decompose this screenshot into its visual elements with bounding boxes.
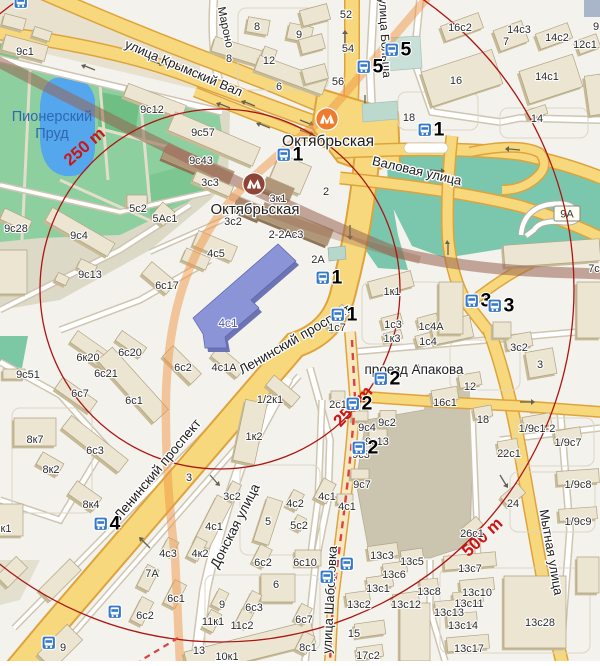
svg-text:9c12: 9c12 (140, 104, 164, 116)
svg-text:4c1A: 4c1A (211, 362, 237, 374)
svg-text:5c2: 5c2 (129, 203, 147, 215)
svg-text:13c6: 13c6 (382, 569, 406, 581)
svg-text:1: 1 (293, 144, 304, 166)
svg-text:1c7: 1c7 (328, 322, 346, 334)
svg-text:4c1: 4c1 (218, 316, 238, 330)
svg-text:9c13: 9c13 (78, 269, 102, 281)
svg-text:4c1: 4c1 (338, 501, 356, 513)
svg-text:6c1: 6c1 (167, 593, 185, 605)
svg-text:7c: 7c (588, 263, 600, 275)
svg-text:6: 6 (276, 81, 282, 93)
svg-text:8к7: 8к7 (26, 434, 43, 446)
svg-text:11c2: 11c2 (230, 620, 253, 632)
svg-text:1/9c9: 1/9c9 (565, 516, 592, 528)
svg-text:5: 5 (401, 39, 412, 61)
svg-text:6c10: 6c10 (293, 557, 317, 569)
svg-text:8c1: 8c1 (299, 642, 317, 654)
svg-text:22c1: 22c1 (497, 448, 521, 460)
svg-text:6c7: 6c7 (71, 388, 89, 400)
svg-text:13c1: 13c1 (366, 583, 390, 595)
svg-text:9c7: 9c7 (353, 479, 371, 491)
svg-text:8: 8 (254, 21, 260, 33)
svg-text:6c2: 6c2 (254, 557, 272, 569)
svg-text:3c3: 3c3 (201, 177, 219, 189)
svg-text:6c3: 6c3 (86, 445, 104, 457)
svg-text:1к3: 1к3 (383, 333, 400, 345)
svg-text:14c1: 14c1 (535, 71, 559, 83)
svg-text:6c21: 6c21 (94, 368, 118, 380)
svg-text:8к2: 8к2 (42, 464, 59, 476)
svg-text:4c1: 4c1 (318, 491, 336, 503)
svg-text:14c2: 14c2 (545, 32, 569, 44)
svg-text:56: 56 (332, 76, 344, 88)
svg-text:3: 3 (504, 295, 515, 317)
svg-text:6c2: 6c2 (136, 610, 154, 622)
svg-text:1к2: 1к2 (245, 431, 262, 443)
svg-text:13c7: 13c7 (458, 563, 482, 575)
svg-text:3c2: 3c2 (510, 342, 528, 354)
svg-text:13: 13 (193, 645, 205, 657)
svg-text:13c28: 13c28 (525, 617, 555, 629)
svg-text:4c1: 4c1 (205, 521, 223, 533)
svg-text:1к1: 1к1 (383, 286, 400, 298)
svg-text:2-2Ac3: 2-2Ac3 (269, 229, 304, 241)
svg-text:6c17: 6c17 (155, 280, 179, 292)
svg-text:12: 12 (263, 55, 275, 67)
svg-text:7: 7 (503, 36, 509, 48)
svg-text:Пионерский: Пионерский (12, 109, 93, 125)
svg-text:54: 54 (342, 43, 354, 55)
svg-text:3c2: 3c2 (223, 491, 241, 503)
svg-text:1c4A: 1c4A (418, 321, 444, 333)
svg-text:11к1: 11к1 (202, 616, 224, 628)
svg-text:5c2: 5c2 (290, 520, 308, 532)
svg-text:17c2: 17c2 (356, 650, 380, 661)
svg-text:14: 14 (531, 113, 543, 125)
svg-text:5: 5 (373, 56, 384, 78)
svg-text:5Ac1: 5Ac1 (152, 213, 177, 225)
svg-text:13c3: 13c3 (370, 550, 394, 562)
svg-text:16: 16 (450, 75, 462, 87)
svg-text:9c43: 9c43 (189, 155, 213, 167)
svg-text:Пруд: Пруд (35, 126, 69, 142)
svg-text:6c7: 6c7 (295, 614, 313, 626)
svg-text:1: 1 (434, 119, 445, 141)
svg-text:13c8: 13c8 (417, 586, 441, 598)
svg-text:2: 2 (362, 393, 373, 415)
svg-text:13c2: 13c2 (347, 599, 371, 611)
svg-text:8: 8 (226, 53, 232, 65)
svg-text:2: 2 (390, 368, 401, 390)
svg-text:9c51: 9c51 (16, 369, 40, 381)
svg-text:26c1: 26c1 (460, 528, 484, 540)
svg-text:4c3: 4c3 (159, 548, 177, 560)
svg-text:9: 9 (296, 29, 302, 41)
svg-text:14c3: 14c3 (507, 24, 531, 36)
svg-text:6c20: 6c20 (118, 347, 142, 359)
svg-text:6: 6 (273, 579, 279, 591)
svg-text:Октябрьская: Октябрьская (211, 201, 300, 218)
svg-text:18: 18 (477, 414, 489, 426)
svg-text:7A: 7A (145, 568, 159, 580)
svg-text:13c12: 13c12 (391, 599, 421, 611)
svg-text:6c3: 6c3 (245, 602, 263, 614)
svg-text:6c1: 6c1 (125, 395, 143, 407)
svg-text:1/9c7: 1/9c7 (555, 437, 582, 449)
svg-text:9c28: 9c28 (4, 223, 28, 235)
svg-text:6c2: 6c2 (174, 362, 192, 374)
svg-text:5: 5 (265, 516, 271, 528)
svg-text:12c1: 12c1 (573, 39, 597, 51)
svg-text:2c1: 2c1 (329, 399, 347, 411)
svg-text:1c4: 1c4 (419, 336, 437, 348)
svg-text:10к1: 10к1 (215, 651, 238, 661)
svg-text:13c14: 13c14 (448, 620, 478, 632)
svg-text:18: 18 (403, 112, 415, 124)
svg-text:2: 2 (323, 186, 329, 198)
svg-text:13c17: 13c17 (454, 643, 484, 655)
svg-text:13c13: 13c13 (434, 607, 464, 619)
svg-text:к1: к1 (1, 523, 12, 535)
svg-text:9c4: 9c4 (358, 422, 376, 434)
svg-text:12: 12 (464, 381, 476, 393)
svg-text:16c1: 16c1 (433, 397, 457, 409)
svg-text:24: 24 (507, 498, 519, 510)
svg-text:9: 9 (60, 642, 66, 654)
svg-text:3: 3 (186, 472, 192, 484)
svg-text:13c5: 13c5 (400, 556, 424, 568)
svg-text:16c2: 16c2 (448, 22, 472, 34)
svg-text:1/2к1: 1/2к1 (257, 394, 283, 406)
svg-text:15: 15 (348, 628, 360, 640)
svg-text:2: 2 (368, 437, 379, 459)
svg-text:1: 1 (332, 267, 343, 289)
svg-text:2A: 2A (311, 254, 325, 266)
svg-text:1: 1 (347, 304, 358, 326)
svg-text:4: 4 (110, 513, 121, 535)
svg-text:1/9c1-2: 1/9c1-2 (519, 423, 556, 435)
svg-text:9c1: 9c1 (16, 46, 34, 58)
svg-text:52: 52 (340, 9, 352, 21)
svg-text:6к20: 6к20 (76, 352, 99, 364)
svg-text:4c5: 4c5 (207, 248, 225, 260)
svg-text:4c2: 4c2 (286, 498, 304, 510)
svg-text:8к4: 8к4 (82, 499, 99, 511)
svg-text:1/9c8: 1/9c8 (565, 479, 592, 491)
svg-text:9c57: 9c57 (191, 127, 215, 139)
svg-text:9c2: 9c2 (378, 417, 396, 429)
svg-text:4к2: 4к2 (191, 548, 208, 560)
svg-text:1c3: 1c3 (384, 319, 402, 331)
svg-text:9: 9 (219, 599, 225, 611)
svg-text:9: 9 (593, 21, 599, 33)
svg-text:9c4: 9c4 (70, 230, 88, 242)
svg-text:3: 3 (537, 359, 543, 371)
